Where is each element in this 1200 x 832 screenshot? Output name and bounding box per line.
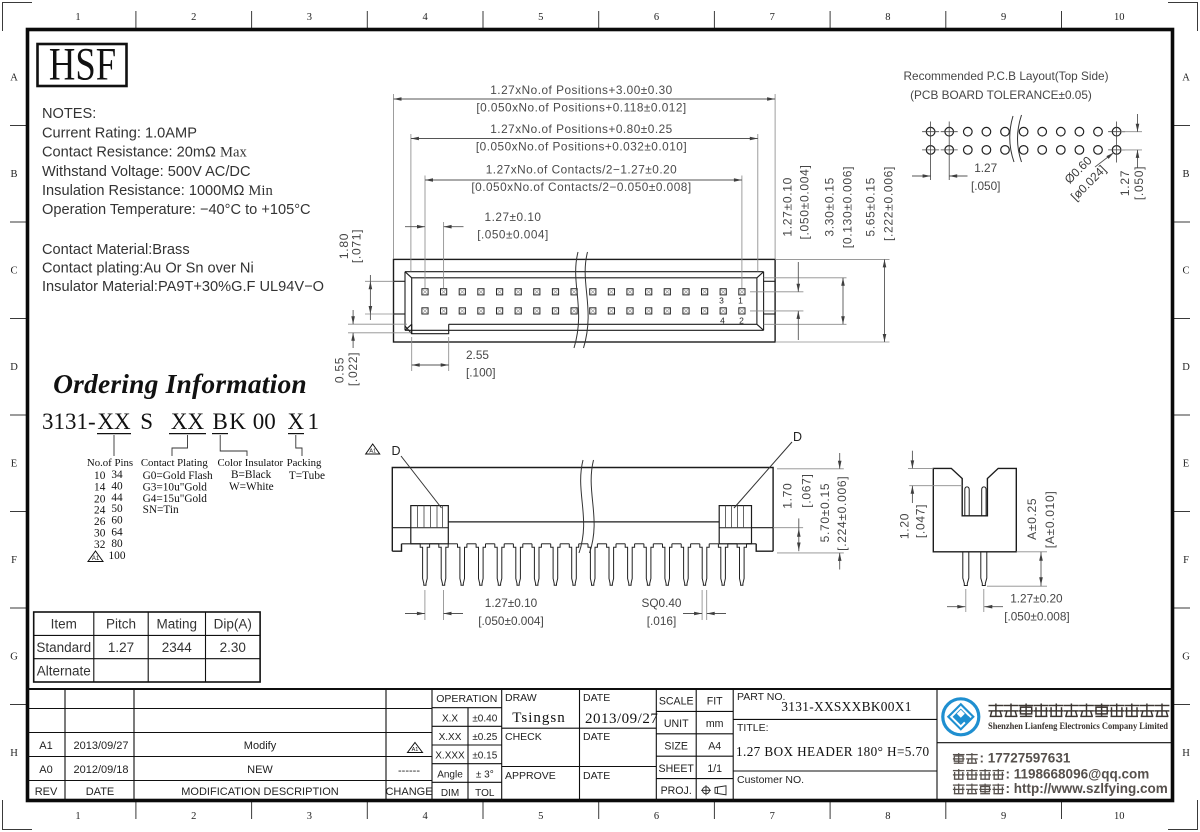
svg-text:10: 10 <box>1114 12 1125 23</box>
svg-text:D: D <box>10 362 18 373</box>
svg-text:4: 4 <box>422 811 428 822</box>
svg-text:[0.130±0.006]: [0.130±0.006] <box>840 166 854 248</box>
svg-text:Operation Temperature: −40°C: Operation Temperature: −40°C to +105°C <box>42 202 311 218</box>
svg-text:A1: A1 <box>369 449 376 455</box>
svg-text:S: S <box>140 409 153 434</box>
svg-text:Insulator Material:PA9T+30%G.: Insulator Material:PA9T+30%G.F UL94V−O <box>42 279 324 295</box>
svg-text:64: 64 <box>111 527 123 539</box>
svg-text:E: E <box>11 459 17 470</box>
svg-text:G: G <box>1182 652 1190 663</box>
svg-text:9: 9 <box>1001 12 1006 23</box>
svg-text:3: 3 <box>719 296 724 306</box>
svg-text:: 17727597631: : 17727597631 <box>980 751 1071 766</box>
svg-text:HSF: HSF <box>49 38 116 90</box>
svg-text:1.70: 1.70 <box>781 483 795 509</box>
svg-text:H: H <box>1182 748 1190 759</box>
svg-text:Contact Resistance: 20mΩ Ma: Contact Resistance: 20mΩ Max <box>42 145 247 161</box>
svg-text:T=Tube: T=Tube <box>289 470 325 482</box>
svg-text:REV: REV <box>35 786 58 798</box>
svg-text:Contact plating:Au Or Sn o: Contact plating:Au Or Sn over Ni <box>42 261 254 277</box>
svg-text:A1: A1 <box>412 747 419 753</box>
svg-text:9: 9 <box>1001 811 1006 822</box>
svg-text:Insulation Resistance: 1000M: Insulation Resistance: 1000MΩ Min <box>42 183 273 199</box>
svg-text:PART NO.: PART NO. <box>737 691 785 703</box>
svg-text:Color Insulator: Color Insulator <box>217 457 283 469</box>
svg-text:2.55: 2.55 <box>466 348 489 362</box>
svg-text:34: 34 <box>111 469 123 481</box>
svg-text:2: 2 <box>739 315 744 325</box>
svg-text:G0=Gold Flash: G0=Gold Flash <box>143 470 213 482</box>
svg-text:30: 30 <box>94 528 106 540</box>
svg-text:[0.050xNo.of Positions+0.032±: [0.050xNo.of Positions+0.032±0.010] <box>476 140 687 154</box>
svg-text:Dip(A): Dip(A) <box>214 617 252 632</box>
svg-text:[.100]: [.100] <box>466 366 496 380</box>
svg-text:DATE: DATE <box>86 786 115 798</box>
svg-text:6: 6 <box>654 12 659 23</box>
svg-text:A1: A1 <box>92 556 100 562</box>
svg-text:1.27: 1.27 <box>974 161 997 175</box>
svg-text:0.55: 0.55 <box>333 357 347 383</box>
svg-text:[.050±0.004]: [.050±0.004] <box>478 614 544 628</box>
svg-text:2: 2 <box>191 12 196 23</box>
svg-text:[.222±0.006]: [.222±0.006] <box>881 166 895 241</box>
svg-text:Standard: Standard <box>36 640 91 655</box>
svg-text:W=White: W=White <box>229 481 274 493</box>
svg-text:[0.050xNo.of Contacts/2−0.050: [0.050xNo.of Contacts/2−0.050±0.008] <box>471 180 691 194</box>
svg-text:00: 00 <box>253 409 276 434</box>
svg-text:1.27xNo.of Contacts/2−1.27±0.: 1.27xNo.of Contacts/2−1.27±0.20 <box>486 163 678 177</box>
svg-text:3131-XXSXXBK00X1: 3131-XXSXXBK00X1 <box>781 699 912 714</box>
svg-text:1.27xNo.of Positions+0.80±0.2: 1.27xNo.of Positions+0.80±0.25 <box>490 122 672 136</box>
svg-text:X.X: X.X <box>442 714 458 725</box>
svg-text:A1: A1 <box>39 740 52 752</box>
svg-text:1.27±0.20: 1.27±0.20 <box>1010 592 1063 606</box>
svg-text:: 1198668096@qq.com: : 1198668096@qq.com <box>1006 767 1150 782</box>
svg-text:OPERATION: OPERATION <box>436 693 497 705</box>
svg-text:50: 50 <box>111 503 123 515</box>
svg-text:B=Black: B=Black <box>231 469 272 481</box>
svg-text:1: 1 <box>75 12 80 23</box>
svg-text:8: 8 <box>885 811 890 822</box>
svg-text:3: 3 <box>307 811 312 822</box>
svg-text:[.022]: [.022] <box>346 352 360 386</box>
svg-text:[.047]: [.047] <box>914 504 928 538</box>
svg-text:24: 24 <box>94 504 106 516</box>
svg-text:100: 100 <box>109 550 126 562</box>
svg-text:FIT: FIT <box>707 696 723 708</box>
svg-text:1.27±0.10: 1.27±0.10 <box>780 177 794 237</box>
svg-text:[A±0.010]: [A±0.010] <box>1043 491 1057 549</box>
svg-text:40: 40 <box>111 480 123 492</box>
svg-text:1.27 BOX HEADER 180° H=5.70: 1.27 BOX HEADER 180° H=5.70 <box>736 744 929 759</box>
svg-text:G: G <box>10 652 18 663</box>
svg-text:DIM: DIM <box>441 788 459 799</box>
svg-text:[.224±0.006]: [.224±0.006] <box>835 476 849 551</box>
svg-text:7: 7 <box>770 811 775 822</box>
svg-text:1.27xNo.of Positions+3.00±0.3: 1.27xNo.of Positions+3.00±0.30 <box>490 83 672 97</box>
svg-text:2013/09/27: 2013/09/27 <box>73 740 128 752</box>
svg-text:F: F <box>1183 555 1189 566</box>
svg-text:X.XXX: X.XXX <box>435 751 465 762</box>
svg-text:SCALE: SCALE <box>659 696 694 708</box>
svg-text:Contact Material:Brass: Contact Material:Brass <box>42 242 190 258</box>
svg-text:5: 5 <box>538 12 543 23</box>
svg-text:PROJ.: PROJ. <box>661 785 692 797</box>
svg-text:4: 4 <box>422 12 428 23</box>
svg-text:2344: 2344 <box>162 640 193 655</box>
svg-text:3131-: 3131- <box>42 409 96 434</box>
svg-text:UNIT: UNIT <box>664 718 689 730</box>
svg-text:1: 1 <box>75 811 80 822</box>
svg-text:1.27±0.10: 1.27±0.10 <box>485 596 538 610</box>
svg-text:CHANGE: CHANGE <box>385 786 432 798</box>
svg-text:5: 5 <box>538 811 543 822</box>
svg-text:C: C <box>1182 266 1189 277</box>
svg-text:NOTES:: NOTES: <box>42 106 96 122</box>
svg-text:B: B <box>10 169 17 180</box>
svg-text:1: 1 <box>738 296 743 306</box>
svg-text:G4=15u"Gold: G4=15u"Gold <box>143 493 208 505</box>
svg-text:4: 4 <box>720 315 725 325</box>
svg-text:2.30: 2.30 <box>220 640 246 655</box>
svg-text:1/1: 1/1 <box>707 763 722 775</box>
svg-text:[.050±0.008]: [.050±0.008] <box>1004 610 1070 624</box>
svg-text:Withstand Voltage: 500V AC/: Withstand Voltage: 500V AC/DC <box>42 164 250 180</box>
svg-text:±0.25: ±0.25 <box>472 732 497 743</box>
svg-text:Contact Plating: Contact Plating <box>141 457 208 469</box>
svg-text:A0: A0 <box>39 764 52 776</box>
svg-text:Alternate: Alternate <box>37 664 91 679</box>
svg-text:5.65±0.15: 5.65±0.15 <box>864 177 878 237</box>
svg-text:±0.15: ±0.15 <box>472 751 497 762</box>
svg-text:A±0.25: A±0.25 <box>1025 498 1039 540</box>
svg-text:Pitch: Pitch <box>106 617 136 632</box>
svg-text:±0.40: ±0.40 <box>472 714 497 725</box>
svg-text:SN=Tin: SN=Tin <box>143 504 179 516</box>
svg-text:APPROVE: APPROVE <box>505 770 556 782</box>
svg-text:Angle: Angle <box>437 769 463 780</box>
svg-text:2013/09/27: 2013/09/27 <box>585 711 658 727</box>
svg-text:Shenzhen Lianfeng Electronics: Shenzhen Lianfeng Electronics Company Li… <box>988 721 1168 731</box>
svg-text:E: E <box>1183 459 1189 470</box>
svg-text:CHECK: CHECK <box>505 731 542 743</box>
svg-text:DATE: DATE <box>583 692 610 704</box>
svg-text:: http://www.szlfying.com: : http://www.szlfying.com <box>1006 781 1168 796</box>
svg-text:DRAW: DRAW <box>505 692 537 704</box>
svg-text:2012/09/18: 2012/09/18 <box>73 764 128 776</box>
svg-text:A4: A4 <box>708 740 721 752</box>
svg-text:1.27: 1.27 <box>1118 170 1132 196</box>
svg-text:80: 80 <box>111 538 123 550</box>
svg-text:[.050±0.004]: [.050±0.004] <box>477 228 549 242</box>
svg-text:26: 26 <box>94 516 106 528</box>
svg-text:MODIFICATION DESCRIPTION: MODIFICATION DESCRIPTION <box>181 786 339 798</box>
svg-text:G3=10u"Gold: G3=10u"Gold <box>143 481 208 493</box>
svg-text:Current Rating: 1.0AMP: Current Rating: 1.0AMP <box>42 126 197 142</box>
svg-text:X: X <box>287 409 304 434</box>
svg-text:2: 2 <box>191 811 196 822</box>
svg-text:XX: XX <box>97 409 131 434</box>
svg-text:[.071]: [.071] <box>350 229 364 263</box>
svg-text:3.30±0.15: 3.30±0.15 <box>823 177 837 237</box>
svg-text:1.27: 1.27 <box>108 640 134 655</box>
svg-text:C: C <box>10 266 17 277</box>
svg-text:No.of Pins: No.of Pins <box>87 457 133 469</box>
svg-text:[.050]: [.050] <box>971 179 1001 193</box>
svg-text:SQ0.40: SQ0.40 <box>641 596 681 610</box>
svg-text:D: D <box>1182 362 1190 373</box>
svg-text:[0.050xNo.of Positions+0.118±: [0.050xNo.of Positions+0.118±0.012] <box>476 101 686 115</box>
svg-text:Recommended P.C.B Layout(Top: Recommended P.C.B Layout(Top Side) <box>903 69 1108 83</box>
svg-text:------: ------ <box>398 765 420 777</box>
svg-text:F: F <box>11 555 17 566</box>
svg-text:8: 8 <box>885 12 890 23</box>
svg-text:Mating: Mating <box>157 617 198 632</box>
svg-text:Packing: Packing <box>287 457 322 469</box>
svg-text:X.XX: X.XX <box>439 732 462 743</box>
svg-text:1.20: 1.20 <box>898 513 912 539</box>
svg-text:Customer NO.: Customer NO. <box>737 774 804 786</box>
svg-text:Ordering Information: Ordering Information <box>53 368 307 399</box>
svg-text:DATE: DATE <box>583 770 610 782</box>
svg-text:[.050]: [.050] <box>1132 166 1146 200</box>
svg-text:TOL: TOL <box>475 788 495 799</box>
svg-text:32: 32 <box>94 539 106 551</box>
svg-text:10: 10 <box>94 470 106 482</box>
svg-text:D: D <box>391 444 400 458</box>
svg-text:(PCB BOARD TOLERANCE±0.05): (PCB BOARD TOLERANCE±0.05) <box>910 88 1092 102</box>
svg-text:SHEET: SHEET <box>659 763 695 775</box>
svg-text:NEW: NEW <box>247 764 273 776</box>
svg-text:7: 7 <box>770 12 775 23</box>
svg-text:DATE: DATE <box>583 731 610 743</box>
svg-text:D: D <box>793 430 802 444</box>
svg-text:Tsingsn: Tsingsn <box>512 710 565 726</box>
svg-text:5.70±0.15: 5.70±0.15 <box>818 483 832 543</box>
svg-text:[.050±0.004]: [.050±0.004] <box>798 164 812 239</box>
svg-text:6: 6 <box>654 811 659 822</box>
svg-text:Modify: Modify <box>244 740 277 752</box>
svg-text:1: 1 <box>307 409 319 434</box>
svg-text:3: 3 <box>307 12 312 23</box>
svg-text:[.067]: [.067] <box>799 473 813 507</box>
svg-text:B: B <box>213 409 228 434</box>
svg-text:± 3°: ± 3° <box>476 769 494 780</box>
svg-text:[.016]: [.016] <box>647 614 677 628</box>
svg-text:60: 60 <box>111 515 123 527</box>
svg-text:10: 10 <box>1114 811 1125 822</box>
svg-text:SIZE: SIZE <box>664 740 688 752</box>
svg-text:A: A <box>1182 73 1190 84</box>
svg-text:XX: XX <box>171 409 205 434</box>
svg-text:K: K <box>229 409 246 434</box>
svg-text:1.27±0.10: 1.27±0.10 <box>485 210 542 224</box>
svg-text:mm: mm <box>706 718 724 730</box>
svg-text:A: A <box>10 73 18 84</box>
svg-text:Item: Item <box>51 617 77 632</box>
svg-text:TITLE:: TITLE: <box>737 722 769 734</box>
svg-text:H: H <box>10 748 18 759</box>
svg-text:14: 14 <box>94 482 106 494</box>
svg-text:B: B <box>1182 169 1189 180</box>
